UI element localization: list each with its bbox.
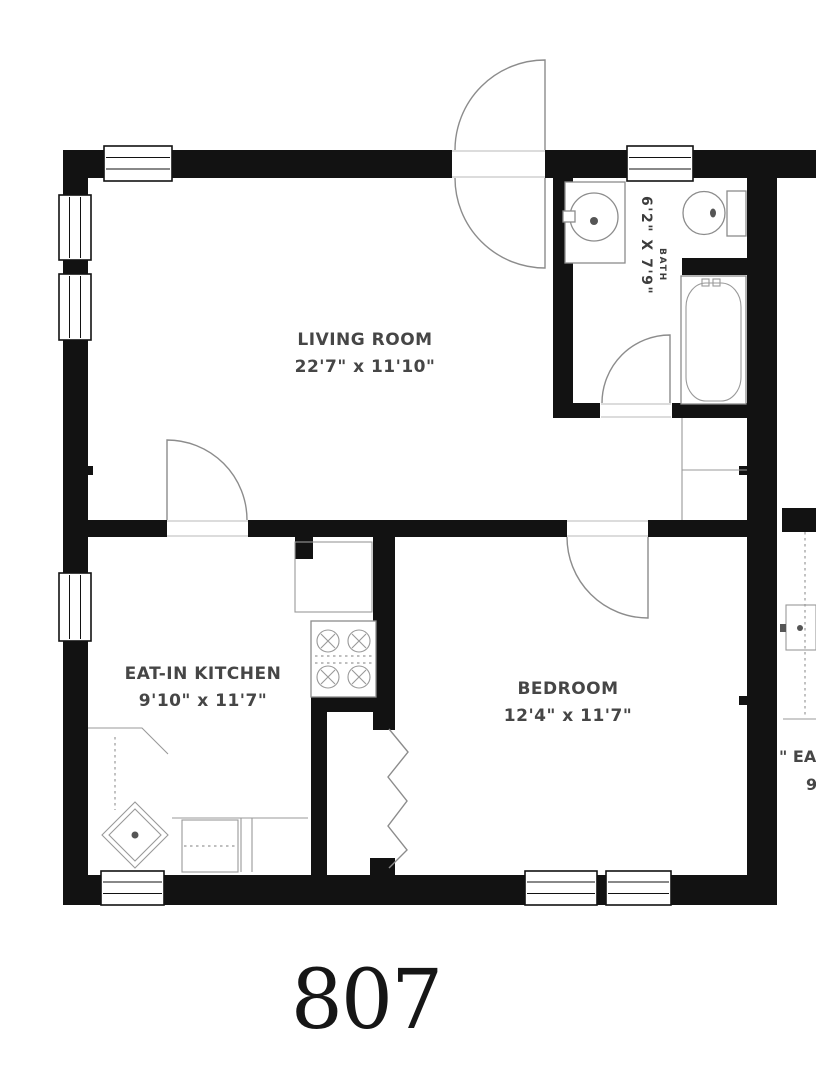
- wall-closet-left: [311, 712, 327, 880]
- toilet: [683, 191, 746, 236]
- wall-left: [63, 150, 88, 195]
- floor-plan-drawing: LIVING ROOM 22'7" x 11'10" EAT-IN KITCHE…: [0, 0, 816, 1080]
- linen-closet: [682, 418, 747, 520]
- wall-nub: [739, 696, 747, 705]
- wall-tub-divider: [682, 258, 748, 275]
- wall-left: [63, 641, 88, 905]
- kitchen-label: EAT-IN KITCHEN: [125, 664, 282, 684]
- stove: [311, 621, 376, 697]
- wall-bath-bottom: [553, 403, 600, 418]
- window: [59, 195, 91, 260]
- wall-middle: [248, 520, 567, 537]
- bath-dimensions: 6'2" X 7'9": [638, 196, 654, 295]
- window: [101, 871, 164, 905]
- wall-adjacent-unit: [782, 508, 816, 532]
- living-room-label: LIVING ROOM: [297, 330, 432, 350]
- bath-label: BATH: [657, 248, 667, 282]
- wall-bottom: [164, 875, 527, 905]
- adjacent-unit-dimensions-partial: 9: [806, 775, 816, 794]
- window: [59, 573, 91, 641]
- kitchen-dimensions: 9'10" x 11'7": [139, 691, 267, 711]
- wall-middle: [63, 520, 167, 537]
- wall-stove-side: [311, 697, 378, 712]
- corner-sink: [102, 802, 168, 868]
- living-room-dimensions: 22'7" x 11'10": [295, 357, 436, 377]
- wall-closet-stub: [370, 858, 395, 880]
- wall-bottom: [597, 875, 606, 905]
- wall-left: [63, 340, 88, 573]
- entry-door-swing-in: [455, 178, 545, 268]
- accordion-closet-door: [388, 729, 408, 868]
- wall-top: [172, 150, 452, 178]
- adjacent-unit-partial: [780, 532, 816, 719]
- bedroom-label: BEDROOM: [517, 679, 618, 699]
- window: [627, 146, 693, 181]
- adjacent-unit-label-partial: " EA: [779, 747, 816, 766]
- bathroom-fixtures: [563, 182, 747, 520]
- wall-top: [545, 150, 627, 178]
- unit-number: 807: [291, 953, 442, 1048]
- wall-middle: [648, 520, 777, 537]
- bath-door-swing: [602, 335, 670, 403]
- bedroom-dimensions: 12'4" x 11'7": [504, 706, 632, 726]
- bathtub: [681, 276, 746, 404]
- window: [104, 146, 172, 181]
- wall-bottom: [63, 875, 101, 905]
- window: [59, 274, 91, 340]
- entry-door-swing-out: [455, 60, 545, 150]
- sink-vanity: [563, 182, 625, 263]
- kitchen-door-swing: [167, 440, 247, 520]
- bedroom-door-swing: [567, 537, 648, 618]
- bedroom-fixtures: [388, 729, 408, 868]
- window: [606, 871, 671, 905]
- wall-bath-bottom: [672, 403, 748, 418]
- counter: [88, 728, 308, 818]
- wall-nub: [85, 466, 93, 475]
- floor-plan-page: LIVING ROOM 22'7" x 11'10" EAT-IN KITCHE…: [0, 0, 816, 1080]
- walls: [63, 150, 816, 905]
- wall-fridge-pier: [295, 537, 313, 559]
- dishwasher: [182, 818, 252, 872]
- wall-left: [63, 260, 88, 274]
- window: [525, 871, 597, 905]
